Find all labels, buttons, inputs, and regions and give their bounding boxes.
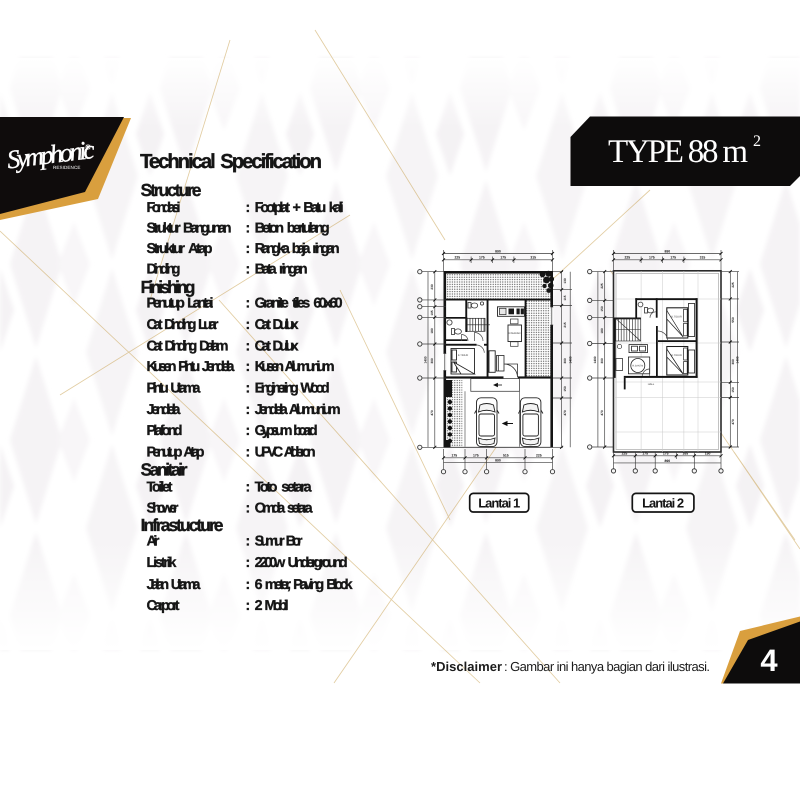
svg-text:Air: Air [147,534,160,550]
svg-text::: : [246,339,251,355]
svg-text:315: 315 [530,256,536,260]
svg-text:300: 300 [600,358,604,364]
svg-text:1400: 1400 [735,356,739,363]
svg-text:Toilet: Toilet [147,480,173,496]
svg-text::: : [246,534,251,550]
svg-text:TYPE 88 m: TYPE 88 m [608,134,748,170]
svg-text:215: 215 [563,322,567,328]
svg-text:230: 230 [430,284,434,290]
svg-text:Rangka baja ringan: Rangka baja ringan [255,241,340,257]
svg-text::: : [246,262,251,278]
svg-text::: : [246,480,251,496]
svg-text:175: 175 [642,452,648,456]
svg-text:225: 225 [622,452,628,456]
svg-text:515: 515 [503,454,509,458]
svg-text:890: 890 [664,459,670,463]
svg-text:Dinding: Dinding [147,262,181,278]
svg-text:175: 175 [649,256,655,260]
svg-text:K.TIDUR: K.TIDUR [671,316,682,319]
svg-text:890: 890 [495,459,501,463]
svg-text:: Gambar ini hanya bagian dari: : Gambar ini hanya bagian dari ilustrasi… [504,659,710,674]
svg-text:150: 150 [600,306,604,312]
svg-text:Penutup Atap: Penutup Atap [147,445,205,461]
svg-text:2 Mobil: 2 Mobil [255,598,289,614]
svg-text:Gypsum board: Gypsum board [255,423,318,439]
svg-text:225: 225 [624,256,630,260]
svg-text:225: 225 [600,283,604,289]
svg-text:225: 225 [731,282,735,288]
svg-text:470: 470 [563,410,567,416]
svg-text:175: 175 [473,454,479,458]
svg-text:2: 2 [753,133,761,150]
svg-text::: : [246,317,251,333]
svg-text::: : [246,423,251,439]
svg-text:Finishing: Finishing [141,277,196,297]
svg-text:Enginering Wood: Enginering Wood [255,381,330,397]
svg-text:470: 470 [430,410,434,416]
svg-text:130: 130 [563,278,567,284]
svg-text:UPVC Alderon: UPVC Alderon [255,445,316,461]
svg-text:180: 180 [600,328,604,334]
svg-text:165: 165 [682,452,688,456]
svg-text:Sanitair: Sanitair [141,460,188,480]
svg-text:K.TIDUR: K.TIDUR [671,354,682,357]
svg-text:Jendela Alumunium: Jendela Alumunium [255,402,341,418]
svg-text:550: 550 [731,317,735,323]
svg-text:150: 150 [731,387,735,393]
svg-text:470: 470 [600,410,604,416]
svg-text:Kusen Pintu Jendela: Kusen Pintu Jendela [147,359,236,375]
svg-text:Struktur Bangunan: Struktur Bangunan [147,221,232,237]
svg-text::: : [246,555,251,571]
svg-text:175: 175 [451,454,457,458]
svg-text::: : [246,501,251,517]
svg-text:1400: 1400 [593,356,597,363]
svg-text:Carport: Carport [147,598,180,614]
svg-text::: : [246,402,251,418]
svg-text:4: 4 [760,643,778,678]
svg-text:Fondasi: Fondasi [147,200,181,216]
svg-text:175: 175 [479,256,485,260]
svg-text:Listrik: Listrik [147,555,177,571]
svg-text:HALL: HALL [648,383,655,386]
svg-text:K.TIDUR: K.TIDUR [458,354,469,357]
svg-text:300: 300 [430,358,434,364]
svg-text:Cat Dulux: Cat Dulux [255,317,299,333]
svg-text:180: 180 [430,328,434,334]
svg-text:300: 300 [563,358,567,364]
svg-text::: : [246,381,251,397]
svg-text::: : [246,296,251,312]
svg-text:115: 115 [563,295,567,300]
svg-text:1400: 1400 [569,356,573,363]
svg-text:Kusen Alumunium: Kusen Alumunium [255,359,335,375]
svg-text::: : [246,200,251,216]
svg-text:2200w Underground: 2200w Underground [255,555,348,571]
svg-text:890: 890 [495,249,501,253]
svg-text:225: 225 [536,454,542,458]
svg-text:Infrastucture: Infrastucture [141,515,224,535]
svg-text:Toto setara: Toto setara [255,480,313,496]
svg-text:175: 175 [670,256,676,260]
svg-text:Beton bertulang: Beton bertulang [255,221,330,237]
svg-text:1400: 1400 [423,356,427,363]
svg-text::: : [246,445,251,461]
svg-text:Penutup Lantai: Penutup Lantai [147,296,214,312]
svg-text:Structure: Structure [141,180,202,200]
svg-text:Footplat + Batu kali: Footplat + Batu kali [255,200,344,216]
svg-text:175: 175 [500,256,506,260]
svg-text:Omda setara: Omda setara [255,501,314,517]
svg-text:RESIDENCE: RESIDENCE [53,165,82,170]
svg-text:Struktur Atap: Struktur Atap [147,241,213,257]
svg-text:150: 150 [705,452,711,456]
svg-text::: : [246,359,251,375]
svg-text:Jalan Utama: Jalan Utama [147,577,202,593]
svg-text:R.SANTAI: R.SANTAI [632,365,643,368]
svg-text:Pintu Utama: Pintu Utama [147,381,202,397]
svg-text:Sumur Bor: Sumur Bor [255,534,303,550]
svg-text:Cat Dulux: Cat Dulux [255,339,299,355]
svg-text::: : [246,598,251,614]
svg-text::: : [246,221,251,237]
svg-text:470: 470 [731,419,735,425]
svg-text:Granite tiles 60x60: Granite tiles 60x60 [255,296,343,312]
svg-text:175: 175 [663,452,669,456]
svg-text:Lantai 1: Lantai 1 [478,495,520,510]
svg-text:Technical Specification: Technical Specification [140,151,322,173]
svg-text:Plafond: Plafond [147,423,183,439]
svg-text:Cat Dinding Luar: Cat Dinding Luar [147,317,219,333]
svg-text:Jendela: Jendela [147,402,182,418]
svg-text:225: 225 [454,256,460,260]
svg-text:*Disclaimer: *Disclaimer [431,659,502,674]
svg-text:Lantai 2: Lantai 2 [642,495,684,510]
svg-text::: : [246,577,251,593]
svg-text:150: 150 [563,386,567,392]
svg-text:6 meter, Paving Block: 6 meter, Paving Block [255,577,353,593]
svg-text:105: 105 [430,310,434,316]
svg-text:Cat Dinding Dalam: Cat Dinding Dalam [147,339,229,355]
svg-text:R.MAKAN: R.MAKAN [509,332,521,335]
svg-text::: : [246,241,251,257]
svg-text:Bata ringan: Bata ringan [255,262,308,278]
svg-text:315: 315 [700,256,706,260]
svg-text:890: 890 [664,249,670,253]
